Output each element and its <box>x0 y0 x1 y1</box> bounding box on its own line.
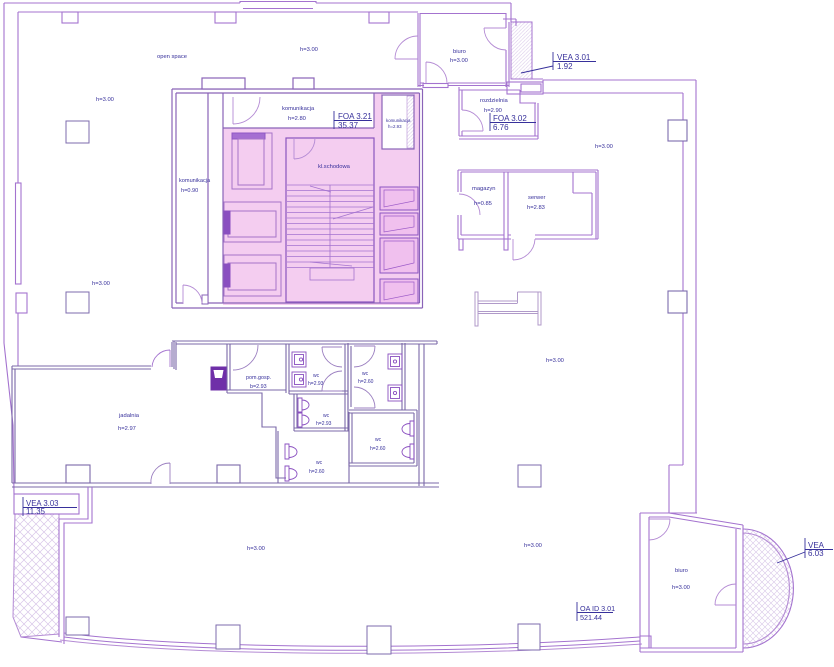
svg-text:FOA 3.21: FOA 3.21 <box>338 112 372 121</box>
svg-text:OA ID 3.01: OA ID 3.01 <box>580 604 615 613</box>
svg-text:wc: wc <box>362 371 369 377</box>
svg-text:h=2.60: h=2.60 <box>370 446 386 452</box>
svg-text:wc: wc <box>313 373 320 379</box>
svg-text:magazyn: magazyn <box>472 186 496 192</box>
svg-text:h=3.00: h=3.00 <box>672 585 690 591</box>
svg-text:h=2.93: h=2.93 <box>308 381 324 387</box>
svg-text:h=0.90: h=0.90 <box>181 188 198 194</box>
svg-text:biuro: biuro <box>453 49 466 55</box>
svg-text:pom.gosp.: pom.gosp. <box>246 375 271 381</box>
svg-text:h=3.00: h=3.00 <box>96 97 114 103</box>
svg-text:h=2.60: h=2.60 <box>309 469 325 475</box>
svg-text:h=3.00: h=3.00 <box>524 543 542 549</box>
svg-text:h=3.00: h=3.00 <box>546 358 564 364</box>
svg-text:h=2.60: h=2.60 <box>358 379 374 385</box>
svg-text:6.03: 6.03 <box>808 549 824 558</box>
svg-text:wc: wc <box>316 460 323 466</box>
svg-text:h=2.83: h=2.83 <box>527 205 545 211</box>
svg-text:h=2.97: h=2.97 <box>118 426 136 432</box>
svg-text:h=3.00: h=3.00 <box>300 47 318 53</box>
svg-text:h=2.93: h=2.93 <box>316 421 332 427</box>
svg-text:komunikacja: komunikacja <box>386 118 411 123</box>
svg-text:biuro: biuro <box>675 568 688 574</box>
svg-text:komunikacja: komunikacja <box>282 106 315 112</box>
svg-text:jadalnia: jadalnia <box>118 413 140 419</box>
svg-text:wc: wc <box>375 437 382 443</box>
svg-text:h=2.93: h=2.93 <box>388 124 402 129</box>
svg-text:h=2.80: h=2.80 <box>288 116 306 122</box>
svg-text:h=3.00: h=3.00 <box>92 281 110 287</box>
svg-text:open space: open space <box>157 54 187 60</box>
svg-text:FOA 3.02: FOA 3.02 <box>493 114 527 123</box>
svg-text:521.44: 521.44 <box>580 613 602 622</box>
svg-text:kl.schodowa: kl.schodowa <box>318 164 351 170</box>
svg-text:VEA 3.01: VEA 3.01 <box>557 53 591 62</box>
svg-text:35.37: 35.37 <box>338 121 359 130</box>
svg-text:komunikacja: komunikacja <box>179 178 211 184</box>
svg-text:11.35: 11.35 <box>26 507 46 516</box>
svg-text:b=2.93: b=2.93 <box>250 384 267 390</box>
svg-text:rozdzielnia: rozdzielnia <box>480 98 508 104</box>
svg-text:serwer: serwer <box>528 195 545 201</box>
svg-text:h=3.00: h=3.00 <box>450 58 468 64</box>
svg-text:wc: wc <box>323 413 330 419</box>
svg-text:6.76: 6.76 <box>493 123 509 132</box>
svg-text:h=3.00: h=3.00 <box>247 546 265 552</box>
svg-text:h=3.00: h=3.00 <box>595 144 613 150</box>
svg-text:1.92: 1.92 <box>557 62 573 71</box>
svg-text:h=0.85: h=0.85 <box>474 201 492 207</box>
